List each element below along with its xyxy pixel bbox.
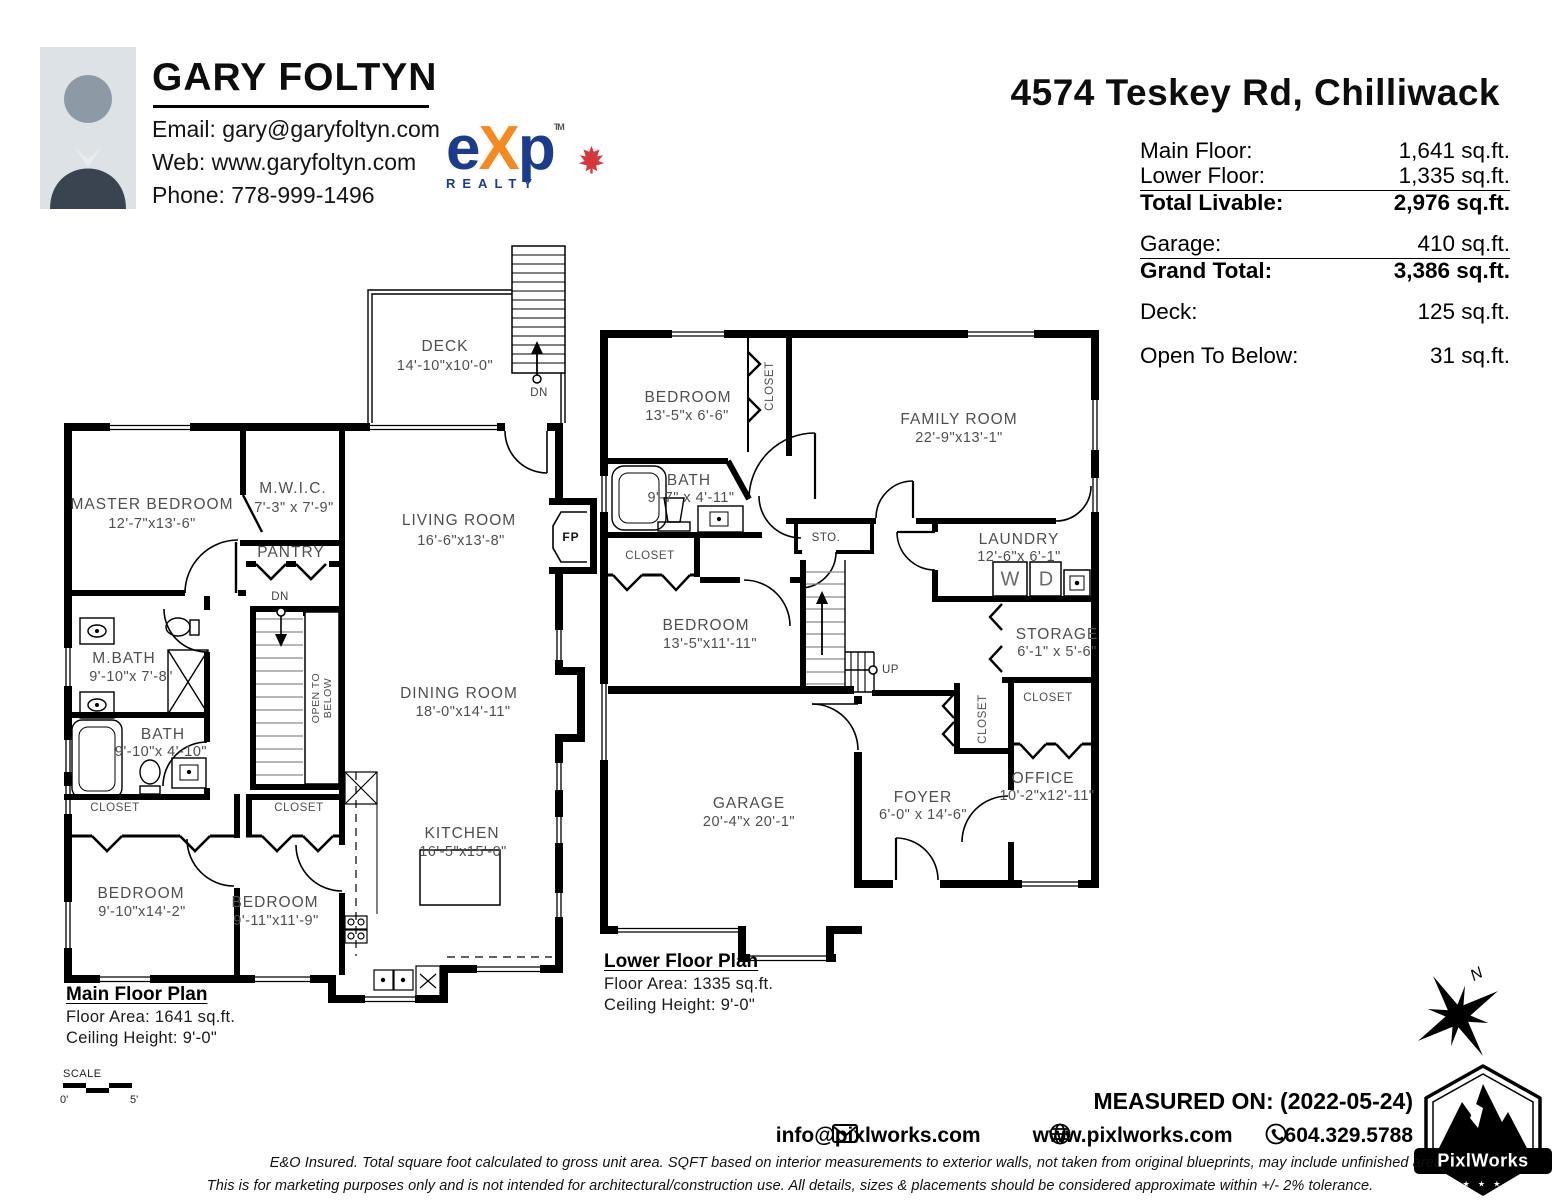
room-dims-deck: 14'-10"x10'-0": [397, 358, 493, 374]
room-dims-mbath: 9'-10"x 7'-8": [89, 669, 173, 685]
room-label-bedroom-2: BEDROOM: [231, 894, 318, 912]
lower-floor-plan-title: Lower Floor Plan: [604, 951, 758, 973]
table-row: Lower Floor:1,335 sq.ft.: [1140, 164, 1510, 189]
room-label-deck: DECK: [421, 338, 468, 356]
property-address: 4574 Teskey Rd, Chilliwack: [1011, 72, 1500, 114]
room-dims-bedroom-1: 9'-10"x14'-2": [98, 904, 186, 920]
scale-start: 0': [60, 1094, 68, 1106]
room-dims-storage: 6'-1" x 5'-6": [1017, 644, 1097, 660]
room-dims-master-bedroom: 12'-7"x13'-6": [108, 516, 196, 532]
table-row-grand-total: Grand Total:3,386 sq.ft.: [1140, 259, 1510, 284]
pixlworks-logo: [1414, 1066, 1552, 1194]
stairs-up-label: UP: [882, 664, 899, 676]
table-row: Garage:410 sq.ft.: [1140, 232, 1510, 257]
flyer-page: GARY FOLTYN Email: gary@garyfoltyn.com W…: [0, 0, 1557, 1200]
closet-label: CLOSET: [977, 694, 989, 744]
room-dims-office: 10'-2"x12'-11": [999, 788, 1094, 804]
room-label-bedroom-1: BEDROOM: [97, 885, 184, 903]
stairs-dn-label: DN: [271, 591, 289, 603]
room-dims-mwic: 7'-3" x 7'-9": [254, 500, 334, 516]
room-dims-foyer: 6'-0" x 14'-6": [879, 807, 967, 823]
agent-phone: Phone: 778-999-1496: [152, 182, 375, 209]
trademark-symbol: TM: [554, 122, 563, 132]
table-row-total-livable: Total Livable:2,976 sq.ft.: [1140, 191, 1510, 216]
room-dims-dining-room: 18'-0"x14'-11": [415, 704, 510, 720]
lower-stairs-icon: [806, 560, 877, 692]
disclaimer-line-2: This is for marketing purposes only and …: [207, 1178, 1373, 1194]
contact-row: info@pixlworks.com www.pixlworks.com 604…: [736, 1124, 1413, 1148]
room-dims-laundry: 12'-6"x 6'-1": [977, 549, 1061, 565]
fireplace-label: FP: [562, 530, 579, 544]
washer-label: W: [1001, 569, 1020, 592]
agent-name-underline: [153, 105, 429, 108]
room-label-lower-bath: BATH: [667, 472, 711, 490]
contact-phone: 604.329.5788: [1285, 1124, 1413, 1148]
disclaimer-line-1: E&O Insured. Total square foot calculate…: [270, 1155, 1447, 1171]
main-floor-area: Floor Area: 1641 sq.ft.: [66, 1008, 235, 1027]
room-label-garage: GARAGE: [713, 795, 785, 813]
scale-bar: [63, 1083, 132, 1093]
room-label-master-bedroom: MASTER BEDROOM: [71, 496, 234, 514]
room-dims-lower-bath: 9'-7" x 4'-11": [647, 490, 734, 506]
room-label-mbath: M.BATH: [92, 650, 155, 668]
table-row: Deck:125 sq.ft.: [1140, 300, 1510, 325]
room-label-lower-bedroom-2: BEDROOM: [662, 617, 749, 635]
closet-label: CLOSET: [1023, 692, 1073, 704]
contact-email: info@pixlworks.com: [776, 1124, 981, 1148]
dryer-label: D: [1039, 569, 1053, 592]
compass-icon: [1393, 951, 1523, 1081]
table-row: Open To Below:31 sq.ft.: [1140, 344, 1510, 369]
main-floor-ceiling: Ceiling Height: 9'-0": [66, 1029, 217, 1048]
room-dims-lower-bedroom-2: 13'-5"x11'-11": [663, 636, 757, 652]
room-dims-bedroom-2: 9'-11"x11'-9": [233, 913, 318, 929]
room-label-pantry: PANTRY: [257, 544, 324, 562]
room-dims-family-room: 22'-9"x13'-1": [915, 430, 1003, 446]
closet-label: CLOSET: [274, 802, 324, 814]
room-label-kitchen: KITCHEN: [424, 825, 499, 843]
table-row: Main Floor:1,641 sq.ft.: [1140, 139, 1510, 164]
room-label-storage: STORAGE: [1016, 626, 1099, 644]
room-dims-bath: 9'-10"x 4'-10": [115, 744, 207, 760]
maple-leaf-icon: [579, 146, 604, 174]
lower-floor-ceiling: Ceiling Height: 9'-0": [604, 996, 755, 1015]
room-label-dining-room: DINING ROOM: [400, 685, 518, 703]
room-label-mwic: M.W.I.C.: [259, 480, 326, 498]
measured-on: MEASURED ON: (2022-05-24): [1093, 1088, 1413, 1115]
main-floor-plan-title: Main Floor Plan: [66, 984, 207, 1006]
agent-name: GARY FOLTYN: [152, 56, 437, 100]
main-bath-fixtures: [72, 618, 208, 798]
deck-dn-label: DN: [530, 387, 548, 399]
room-label-family-room: FAMILY ROOM: [900, 411, 1017, 429]
closet-label: CLOSET: [625, 550, 675, 562]
closet-label: CLOSET: [764, 361, 776, 411]
sto-label: STO.: [812, 532, 841, 544]
exp-realty-logo: eXpTM REALTY: [446, 124, 563, 191]
lower-floor-area: Floor Area: 1335 sq.ft.: [604, 975, 773, 994]
room-label-laundry: LAUNDRY: [979, 531, 1060, 549]
agent-photo: [40, 47, 136, 209]
room-dims-living-room: 16'-6"x13'-8": [417, 533, 505, 549]
area-summary-table: Main Floor:1,641 sq.ft. Lower Floor:1,33…: [1140, 139, 1510, 369]
room-dims-lower-bedroom-1: 13'-5"x 6'-6": [645, 408, 729, 424]
contact-website: www.pixlworks.com: [1033, 1124, 1233, 1148]
room-label-foyer: FOYER: [894, 789, 952, 807]
kitchen-fixtures: [345, 772, 552, 996]
room-label-lower-bedroom-1: BEDROOM: [644, 389, 731, 407]
scale-label: SCALE: [63, 1068, 102, 1080]
closet-label: CLOSET: [90, 802, 140, 814]
pixlworks-stars: ★ ★ ★: [1463, 1180, 1504, 1189]
exp-wordmark: eXpTM: [446, 124, 563, 174]
room-dims-garage: 20'-4"x 20'-1": [703, 814, 795, 830]
agent-website: Web: www.garyfoltyn.com: [152, 149, 416, 176]
room-dims-kitchen: 16'-5"x15'-0": [419, 844, 507, 860]
open-to-below-label: OPEN TO BELOW: [310, 667, 334, 729]
room-label-living-room: LIVING ROOM: [402, 512, 516, 530]
room-label-office: OFFICE: [1012, 770, 1075, 788]
scale-end: 5': [130, 1094, 138, 1106]
pixlworks-logo-text: PixlWorks: [1437, 1151, 1528, 1172]
agent-email: Email: gary@garyfoltyn.com: [152, 116, 440, 143]
room-label-bath: BATH: [141, 726, 185, 744]
